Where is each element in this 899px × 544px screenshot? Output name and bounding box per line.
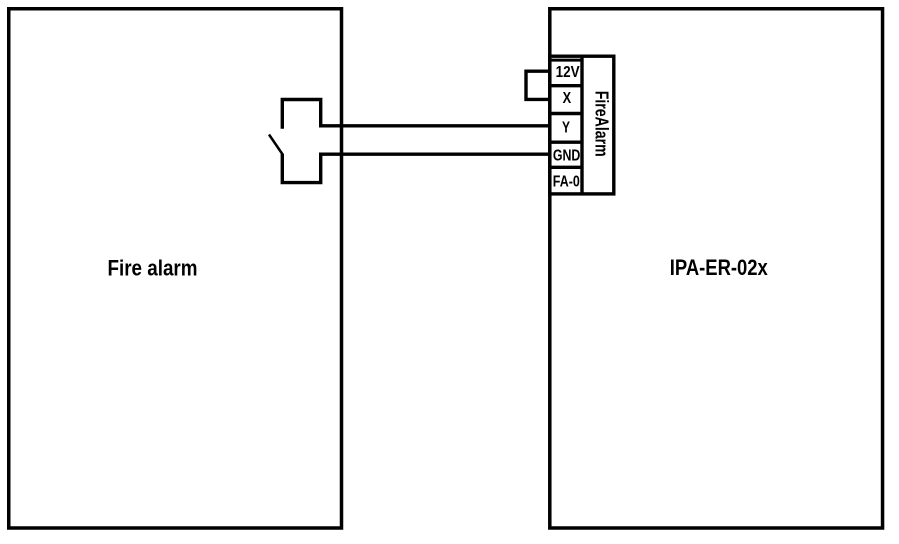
svg-text:12V: 12V: [556, 64, 580, 81]
svg-text:IPA-ER-02x: IPA-ER-02x: [670, 255, 769, 280]
svg-text:GND: GND: [553, 147, 581, 164]
svg-text:Y: Y: [562, 119, 570, 136]
svg-text:X: X: [563, 90, 572, 107]
svg-text:Fire alarm: Fire alarm: [108, 256, 198, 281]
svg-text:FA-0: FA-0: [553, 174, 580, 191]
svg-text:FireAlarm: FireAlarm: [592, 91, 612, 157]
